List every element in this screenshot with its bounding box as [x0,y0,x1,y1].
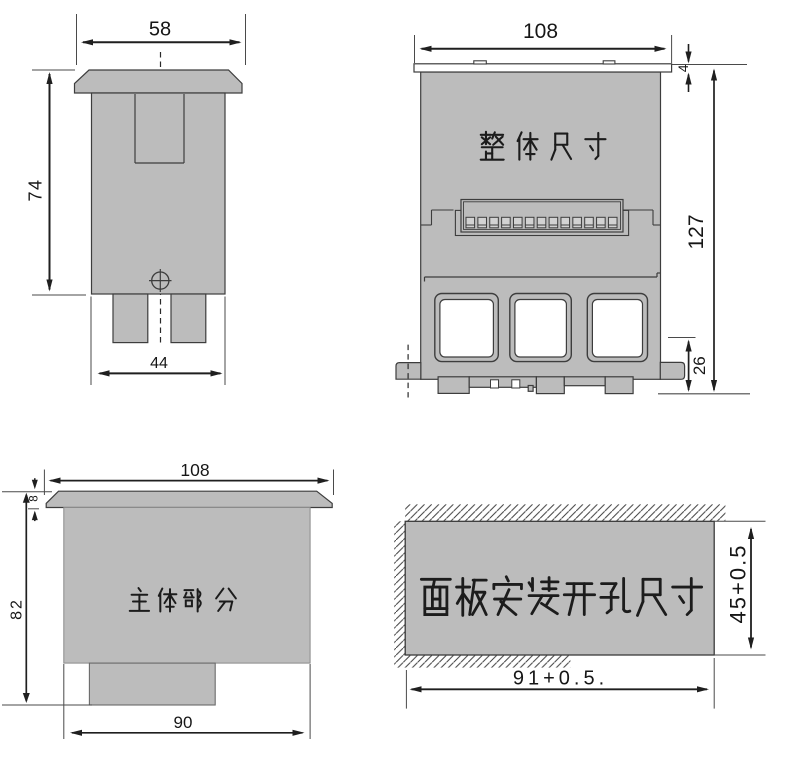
svg-text:26: 26 [690,356,709,375]
svg-text:91+0.5.: 91+0.5. [513,668,608,690]
svg-text:108: 108 [523,20,558,43]
svg-text:58: 58 [149,19,171,41]
svg-text:108: 108 [180,460,209,480]
svg-text:74: 74 [25,178,45,201]
svg-text:82: 82 [8,598,25,620]
svg-text:4: 4 [675,64,691,72]
svg-text:45+0.5: 45+0.5 [726,544,751,624]
svg-text:90: 90 [174,713,193,732]
svg-text:44: 44 [150,355,168,372]
svg-text:8: 8 [29,495,41,501]
svg-text:127: 127 [685,214,708,249]
